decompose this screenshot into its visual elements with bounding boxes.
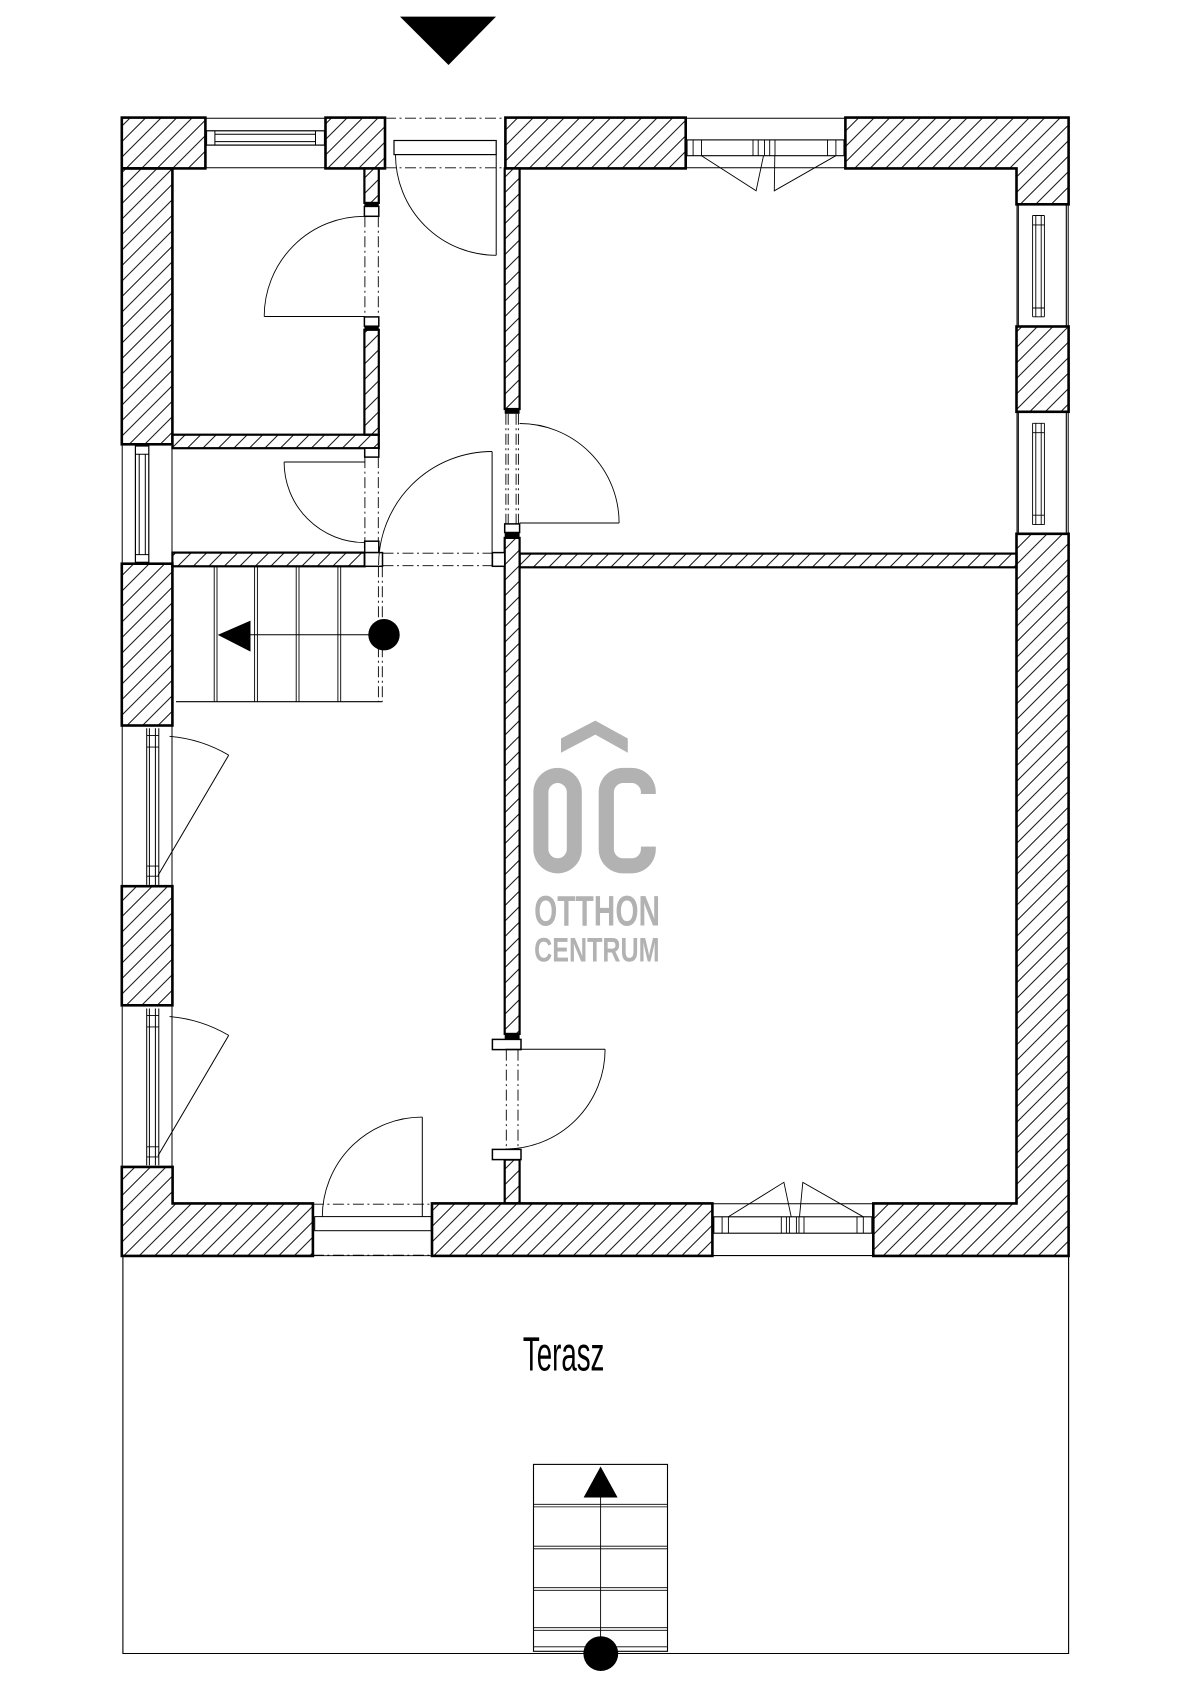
svg-text:Terasz: Terasz [523, 1329, 605, 1382]
svg-text:OTTHON: OTTHON [534, 888, 660, 936]
svg-text:CENTRUM: CENTRUM [534, 932, 660, 970]
